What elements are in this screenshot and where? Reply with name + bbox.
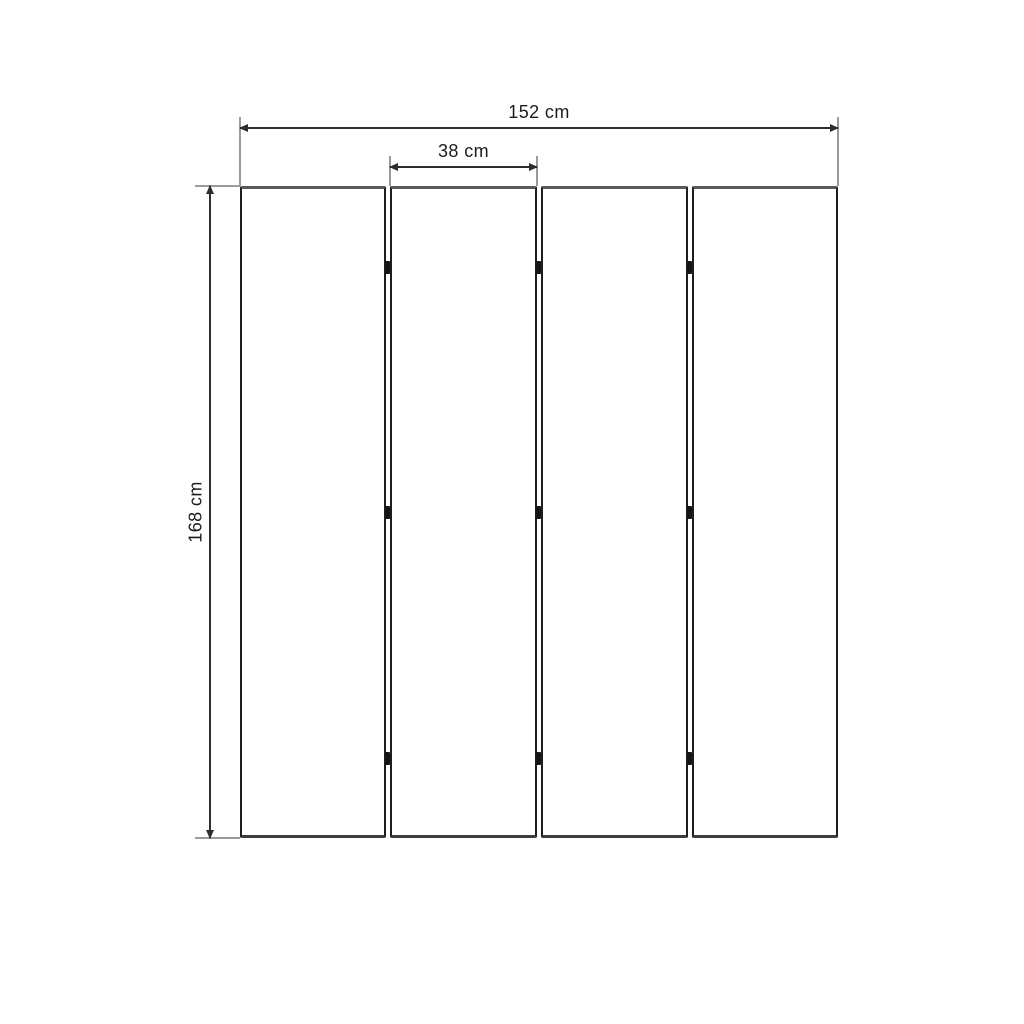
hinge-mark: [687, 506, 692, 519]
hinge-mark: [536, 506, 541, 519]
dimension-height: [209, 186, 211, 838]
arrowhead-left-icon: [239, 124, 248, 132]
screen-panel-1: [240, 186, 386, 838]
dimension-panel-width-label: 38 cm: [438, 141, 489, 162]
hinge-mark: [536, 752, 541, 765]
hinge-mark: [385, 261, 390, 274]
extension-line-height-top: [195, 185, 240, 187]
hinge-mark: [385, 752, 390, 765]
extension-line-panel-width-right: [536, 156, 538, 186]
dimension-total-width-label: 152 cm: [508, 102, 569, 123]
dimension-total-width: 152 cm: [240, 127, 838, 129]
arrowhead-down-icon: [206, 830, 214, 839]
arrowhead-up-icon: [206, 185, 214, 194]
arrowhead-left-icon: [389, 163, 398, 171]
dimension-height-label: 168 cm: [186, 481, 207, 542]
extension-line-panel-width-left: [389, 156, 391, 186]
arrowhead-right-icon: [830, 124, 839, 132]
hinge-mark: [687, 261, 692, 274]
screen-panel-4: [692, 186, 838, 838]
screen-panel-2: [390, 186, 537, 838]
hinge-mark: [385, 506, 390, 519]
hinge-mark: [536, 261, 541, 274]
diagram-canvas: 152 cm 38 cm 168 cm: [0, 0, 1024, 1024]
dimension-panel-width: 38 cm: [390, 166, 537, 168]
arrowhead-right-icon: [529, 163, 538, 171]
screen-panel-3: [541, 186, 688, 838]
hinge-mark: [687, 752, 692, 765]
extension-line-height-bottom: [195, 837, 240, 839]
